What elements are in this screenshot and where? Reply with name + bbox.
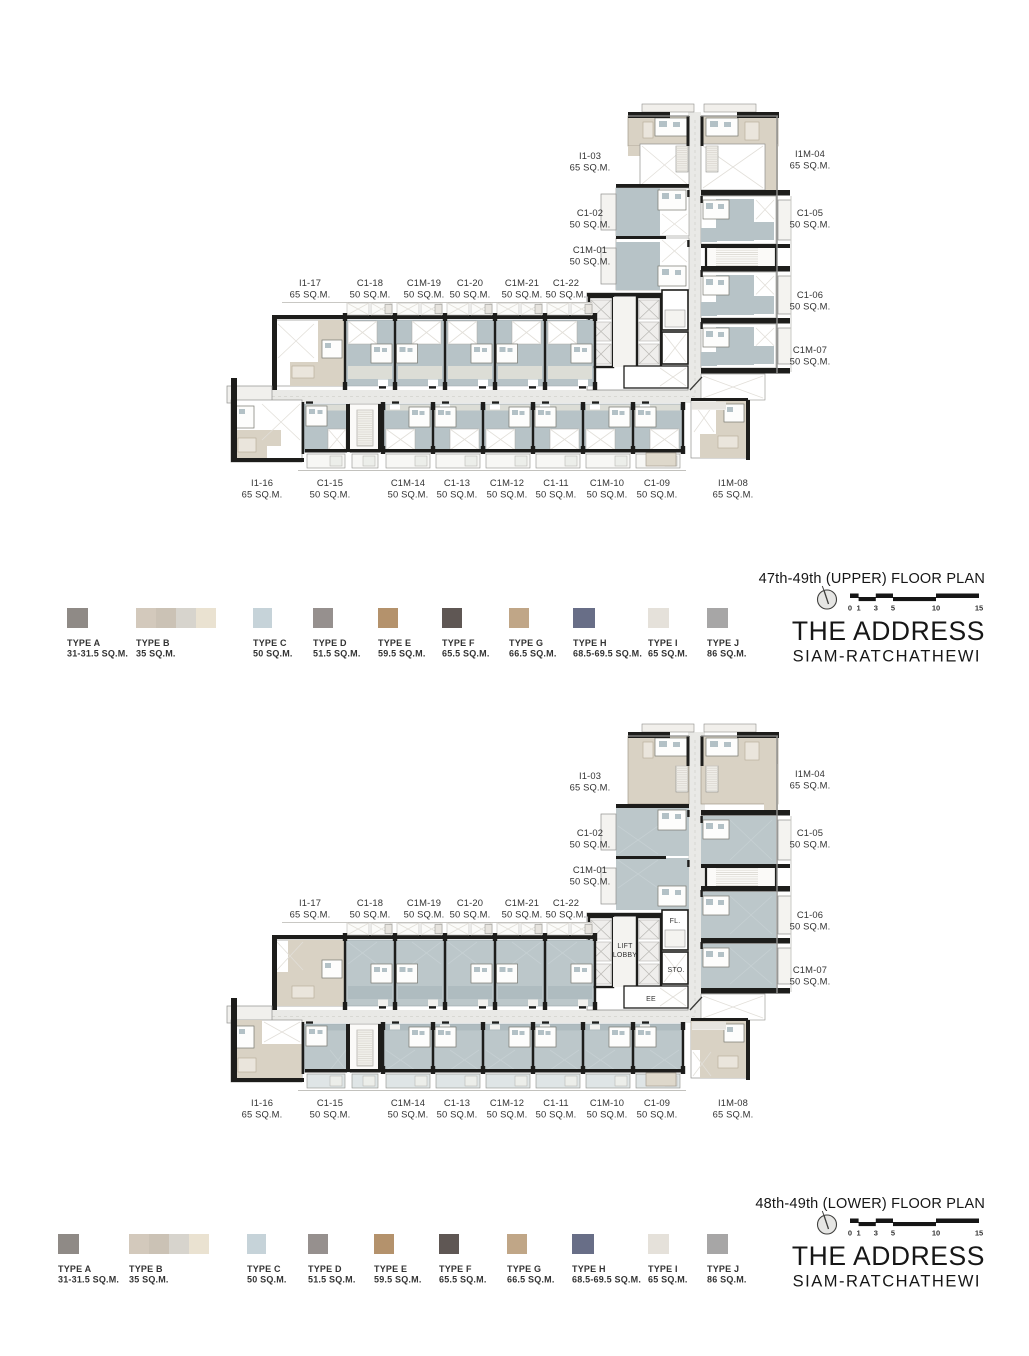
- svg-text:TYPE D: TYPE D: [308, 1264, 342, 1274]
- svg-text:50 SQ.M.: 50 SQ.M.: [350, 909, 391, 920]
- svg-text:50 SQ.M.: 50 SQ.M.: [546, 289, 587, 300]
- svg-text:50 SQ.M.: 50 SQ.M.: [790, 839, 831, 850]
- svg-text:C1M-12: C1M-12: [490, 477, 524, 488]
- svg-text:50 SQ.M.: 50 SQ.M.: [310, 1109, 351, 1120]
- svg-text:65 SQ.M.: 65 SQ.M.: [570, 162, 611, 173]
- svg-text:48th-49th (LOWER) FLOOR PLAN: 48th-49th (LOWER) FLOOR PLAN: [755, 1196, 985, 1212]
- svg-text:50 SQ.M.: 50 SQ.M.: [310, 489, 351, 500]
- svg-text:C1-06: C1-06: [797, 909, 823, 920]
- svg-text:50 SQ.M.: 50 SQ.M.: [247, 1275, 287, 1285]
- svg-text:TYPE C: TYPE C: [247, 1264, 281, 1274]
- svg-text:I1-16: I1-16: [251, 1097, 273, 1108]
- svg-text:1: 1: [857, 604, 861, 613]
- svg-text:I1-03: I1-03: [579, 150, 601, 161]
- svg-text:86 SQ.M.: 86 SQ.M.: [707, 1275, 747, 1285]
- svg-text:50 SQ.M.: 50 SQ.M.: [487, 1109, 528, 1120]
- svg-text:TYPE H: TYPE H: [572, 1264, 606, 1274]
- svg-text:C1-15: C1-15: [317, 1097, 343, 1108]
- svg-text:TYPE G: TYPE G: [509, 638, 543, 648]
- svg-text:66.5 SQ.M.: 66.5 SQ.M.: [507, 1275, 555, 1285]
- svg-text:68.5-69.5 SQ.M.: 68.5-69.5 SQ.M.: [572, 1275, 641, 1285]
- svg-text:C1M-19: C1M-19: [407, 277, 441, 288]
- svg-text:50 SQ.M.: 50 SQ.M.: [570, 876, 611, 887]
- svg-text:50 SQ.M.: 50 SQ.M.: [570, 219, 611, 230]
- svg-text:TYPE E: TYPE E: [378, 638, 411, 648]
- svg-text:50 SQ.M.: 50 SQ.M.: [487, 489, 528, 500]
- svg-text:C1-22: C1-22: [553, 277, 579, 288]
- svg-text:C1-13: C1-13: [444, 477, 470, 488]
- svg-text:C1-05: C1-05: [797, 827, 823, 838]
- svg-text:C1-09: C1-09: [644, 1097, 670, 1108]
- svg-text:50 SQ.M.: 50 SQ.M.: [637, 1109, 678, 1120]
- svg-text:50 SQ.M.: 50 SQ.M.: [388, 1109, 429, 1120]
- svg-text:C1-20: C1-20: [457, 277, 483, 288]
- svg-text:65 SQ.M.: 65 SQ.M.: [290, 289, 331, 300]
- svg-text:50 SQ.M.: 50 SQ.M.: [587, 1109, 628, 1120]
- svg-text:C1-02: C1-02: [577, 827, 603, 838]
- svg-text:15: 15: [975, 604, 983, 613]
- svg-text:C1M-14: C1M-14: [391, 1097, 425, 1108]
- svg-text:C1M-01: C1M-01: [573, 244, 607, 255]
- svg-text:59.5 SQ.M.: 59.5 SQ.M.: [374, 1275, 422, 1285]
- svg-text:I1-17: I1-17: [299, 277, 321, 288]
- svg-text:C1-13: C1-13: [444, 1097, 470, 1108]
- svg-text:50 SQ.M.: 50 SQ.M.: [790, 976, 831, 987]
- svg-text:LOBBY: LOBBY: [613, 952, 637, 959]
- svg-text:31-31.5 SQ.M.: 31-31.5 SQ.M.: [67, 649, 128, 659]
- svg-text:10: 10: [932, 1229, 940, 1238]
- svg-text:65 SQ.M.: 65 SQ.M.: [648, 649, 688, 659]
- svg-text:50 SQ.M.: 50 SQ.M.: [404, 909, 445, 920]
- svg-text:65 SQ.M.: 65 SQ.M.: [290, 909, 331, 920]
- svg-text:86 SQ.M.: 86 SQ.M.: [707, 649, 747, 659]
- svg-text:C1M-01: C1M-01: [573, 864, 607, 875]
- svg-text:0: 0: [848, 604, 852, 613]
- svg-text:5: 5: [891, 604, 895, 613]
- svg-text:65.5 SQ.M.: 65.5 SQ.M.: [439, 1275, 487, 1285]
- svg-text:C1M-19: C1M-19: [407, 897, 441, 908]
- svg-text:59.5 SQ.M.: 59.5 SQ.M.: [378, 649, 426, 659]
- svg-text:C1-06: C1-06: [797, 289, 823, 300]
- svg-text:I1M-08: I1M-08: [718, 477, 748, 488]
- svg-text:I1-16: I1-16: [251, 477, 273, 488]
- svg-text:15: 15: [975, 1229, 983, 1238]
- svg-text:50 SQ.M.: 50 SQ.M.: [790, 921, 831, 932]
- svg-text:50 SQ.M.: 50 SQ.M.: [502, 289, 543, 300]
- svg-text:0: 0: [848, 1229, 852, 1238]
- svg-text:C1-11: C1-11: [543, 1097, 569, 1108]
- svg-text:TYPE H: TYPE H: [573, 638, 607, 648]
- svg-text:65 SQ.M.: 65 SQ.M.: [713, 489, 754, 500]
- svg-text:TYPE E: TYPE E: [374, 1264, 407, 1274]
- svg-text:50 SQ.M.: 50 SQ.M.: [536, 1109, 577, 1120]
- svg-text:TYPE I: TYPE I: [648, 1264, 678, 1274]
- svg-text:TYPE D: TYPE D: [313, 638, 347, 648]
- svg-text:C1-02: C1-02: [577, 207, 603, 218]
- svg-text:C1-09: C1-09: [644, 477, 670, 488]
- svg-text:50 SQ.M.: 50 SQ.M.: [570, 256, 611, 267]
- svg-text:3: 3: [874, 604, 878, 613]
- svg-text:I1M-04: I1M-04: [795, 768, 825, 779]
- svg-text:50 SQ.M.: 50 SQ.M.: [450, 909, 491, 920]
- svg-text:65 SQ.M.: 65 SQ.M.: [790, 780, 831, 791]
- svg-text:50 SQ.M.: 50 SQ.M.: [790, 301, 831, 312]
- svg-text:35 SQ.M.: 35 SQ.M.: [129, 1275, 169, 1285]
- svg-text:50 SQ.M.: 50 SQ.M.: [388, 489, 429, 500]
- svg-text:51.5 SQ.M.: 51.5 SQ.M.: [313, 649, 361, 659]
- svg-text:50 SQ.M.: 50 SQ.M.: [637, 489, 678, 500]
- svg-text:50 SQ.M.: 50 SQ.M.: [437, 489, 478, 500]
- svg-text:TYPE A: TYPE A: [58, 1264, 92, 1274]
- svg-text:50 SQ.M.: 50 SQ.M.: [570, 839, 611, 850]
- svg-text:C1M-12: C1M-12: [490, 1097, 524, 1108]
- svg-text:C1M-10: C1M-10: [590, 477, 624, 488]
- svg-text:TYPE C: TYPE C: [253, 638, 287, 648]
- svg-text:C1-05: C1-05: [797, 207, 823, 218]
- svg-text:C1-20: C1-20: [457, 897, 483, 908]
- svg-text:THE ADDRESS: THE ADDRESS: [792, 1241, 985, 1271]
- svg-text:65 SQ.M.: 65 SQ.M.: [570, 782, 611, 793]
- svg-text:C1M-21: C1M-21: [505, 897, 539, 908]
- svg-text:C1M-21: C1M-21: [505, 277, 539, 288]
- svg-text:I1-17: I1-17: [299, 897, 321, 908]
- svg-text:10: 10: [932, 604, 940, 613]
- svg-text:47th-49th (UPPER) FLOOR PLAN: 47th-49th (UPPER) FLOOR PLAN: [759, 571, 985, 587]
- svg-text:LIFT: LIFT: [617, 943, 633, 950]
- svg-text:I1M-08: I1M-08: [718, 1097, 748, 1108]
- svg-text:STO.: STO.: [667, 967, 684, 974]
- svg-text:35 SQ.M.: 35 SQ.M.: [136, 649, 176, 659]
- svg-text:50 SQ.M.: 50 SQ.M.: [790, 356, 831, 367]
- svg-text:66.5 SQ.M.: 66.5 SQ.M.: [509, 649, 557, 659]
- svg-text:C1M-07: C1M-07: [793, 964, 827, 975]
- svg-text:50 SQ.M.: 50 SQ.M.: [790, 219, 831, 230]
- svg-text:FL.: FL.: [670, 918, 681, 925]
- svg-text:TYPE A: TYPE A: [67, 638, 101, 648]
- svg-text:68.5-69.5 SQ.M.: 68.5-69.5 SQ.M.: [573, 649, 642, 659]
- svg-text:SIAM-RATCHATHEWI: SIAM-RATCHATHEWI: [793, 1273, 981, 1291]
- svg-text:50 SQ.M.: 50 SQ.M.: [437, 1109, 478, 1120]
- svg-text:3: 3: [874, 1229, 878, 1238]
- svg-text:65 SQ.M.: 65 SQ.M.: [648, 1275, 688, 1285]
- svg-text:50 SQ.M.: 50 SQ.M.: [587, 489, 628, 500]
- svg-text:TYPE F: TYPE F: [439, 1264, 472, 1274]
- svg-text:1: 1: [857, 1229, 861, 1238]
- svg-text:51.5 SQ.M.: 51.5 SQ.M.: [308, 1275, 356, 1285]
- svg-text:50 SQ.M.: 50 SQ.M.: [253, 649, 293, 659]
- svg-text:SIAM-RATCHATHEWI: SIAM-RATCHATHEWI: [793, 648, 981, 666]
- svg-text:TYPE B: TYPE B: [136, 638, 170, 648]
- svg-text:65 SQ.M.: 65 SQ.M.: [242, 1109, 283, 1120]
- svg-text:TYPE I: TYPE I: [648, 638, 678, 648]
- svg-text:TYPE G: TYPE G: [507, 1264, 541, 1274]
- svg-text:I1M-04: I1M-04: [795, 148, 825, 159]
- svg-text:I1-03: I1-03: [579, 770, 601, 781]
- svg-text:EE: EE: [646, 996, 656, 1003]
- svg-text:C1-18: C1-18: [357, 897, 383, 908]
- svg-text:65 SQ.M.: 65 SQ.M.: [242, 489, 283, 500]
- svg-text:C1M-14: C1M-14: [391, 477, 425, 488]
- svg-text:C1-18: C1-18: [357, 277, 383, 288]
- svg-text:50 SQ.M.: 50 SQ.M.: [546, 909, 587, 920]
- svg-text:C1-11: C1-11: [543, 477, 569, 488]
- svg-text:50 SQ.M.: 50 SQ.M.: [350, 289, 391, 300]
- svg-text:50 SQ.M.: 50 SQ.M.: [450, 289, 491, 300]
- svg-text:C1M-10: C1M-10: [590, 1097, 624, 1108]
- svg-text:THE ADDRESS: THE ADDRESS: [792, 616, 985, 646]
- svg-text:C1M-07: C1M-07: [793, 344, 827, 355]
- svg-text:C1-22: C1-22: [553, 897, 579, 908]
- svg-text:50 SQ.M.: 50 SQ.M.: [502, 909, 543, 920]
- svg-text:31-31.5 SQ.M.: 31-31.5 SQ.M.: [58, 1275, 119, 1285]
- svg-text:TYPE J: TYPE J: [707, 638, 739, 648]
- svg-text:50 SQ.M.: 50 SQ.M.: [404, 289, 445, 300]
- svg-text:TYPE J: TYPE J: [707, 1264, 739, 1274]
- svg-text:TYPE F: TYPE F: [442, 638, 475, 648]
- svg-text:5: 5: [891, 1229, 895, 1238]
- svg-text:65 SQ.M.: 65 SQ.M.: [790, 160, 831, 171]
- svg-text:C1-15: C1-15: [317, 477, 343, 488]
- svg-text:65 SQ.M.: 65 SQ.M.: [713, 1109, 754, 1120]
- svg-text:65.5 SQ.M.: 65.5 SQ.M.: [442, 649, 490, 659]
- svg-text:TYPE B: TYPE B: [129, 1264, 163, 1274]
- svg-text:50 SQ.M.: 50 SQ.M.: [536, 489, 577, 500]
